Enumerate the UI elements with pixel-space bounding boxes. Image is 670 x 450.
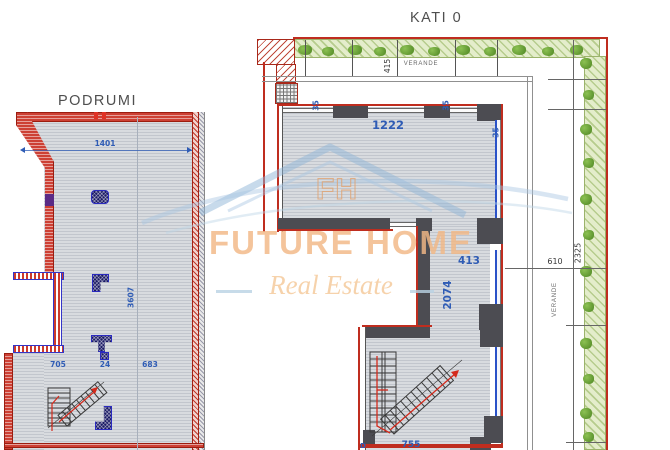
hedge-bush [583,432,594,442]
floorplan-canvas: PODRUMI 1401 3607 705 24 683 [0,0,670,450]
podrumi-wall-tick [102,112,106,119]
hedge-bush [583,158,594,168]
dim-arrow [20,147,25,153]
hedge-bush [583,302,594,312]
podrumi-title: PODRUMI [58,93,137,109]
kati0-dim-living-width: 1222 [366,119,410,132]
podrumi-column-small [100,352,109,360]
tagline-dash [410,290,434,293]
watermark-monogram: FH [316,173,358,206]
hedge-bush [400,45,414,55]
veranda-label-top: VERANDE [402,61,440,67]
veranda-divider [497,40,498,77]
podrumi-dim-bottom-2: 24 [96,361,114,370]
podrumi-staircase [40,374,130,436]
veranda-divider [455,40,456,77]
hedge-bush [583,230,594,240]
hedge-bush [583,374,594,384]
kati0-mesh-block [275,83,298,104]
veranda-divider [397,40,398,77]
podrumi-dim-width: 1401 [75,140,135,149]
hedge-bush [570,45,583,55]
hedge-bush [580,338,592,349]
hedge-bush [348,45,362,55]
podrumi-wall-tick [94,112,98,119]
podrumi-niche-wall-bottom [13,345,64,353]
hedge-bush [580,408,592,419]
veranda-divider [305,40,306,77]
kati0-title: KATI 0 [410,10,462,26]
kati0-wall-lower-top [364,327,430,338]
kati0-boundary-right [606,37,608,450]
hedge-bush [456,45,470,55]
hedge-bush [580,194,592,205]
podrumi-dim-bottom-1: 705 [44,361,72,370]
hedge-bush [580,124,592,135]
kati0-corner-column [477,104,503,121]
hedge-bush [512,45,526,55]
podrumi-dim-depth: 3607 [128,280,139,316]
dim-tick [566,325,606,326]
kati0-hedge-top [293,39,600,58]
podrumi-wall-bottom [4,443,204,448]
veranda-divider [352,40,353,77]
hedge-bush [583,90,594,100]
podrumi-niche-wall-right [53,272,62,353]
watermark-tagline: Real Estate [250,270,412,301]
kati0-wall-redline [362,325,432,327]
podrumi-wall-left-lower [4,353,13,450]
hedge-bush [542,47,554,56]
dim-tick [566,442,606,443]
veranda-railing-top [262,76,533,82]
kati0-hedge-right [584,56,606,450]
kati0-dim-wall: 35 [443,98,452,114]
podrumi-niche [0,277,54,347]
podrumi-door-marker [45,194,54,206]
podrumi-column [91,190,109,204]
hedge-bush [580,58,592,69]
podrumi-dim-bottom-3: 683 [136,361,164,370]
kati0-dim-wall: 35 [313,98,322,114]
kati0-wall-segment [333,106,368,118]
hedge-bush [322,47,334,56]
kati0-dim-veranda-depth: 415 [384,53,394,79]
dim-tick [548,109,606,110]
watermark-brand: FUTURE HOME [198,224,484,262]
podrumi-wall-top [16,112,203,122]
hedge-bush [484,47,496,56]
hedge-bush [428,47,440,56]
kati0-staircase [362,340,497,450]
tagline-dash [216,290,252,293]
dim-tick [548,79,606,80]
